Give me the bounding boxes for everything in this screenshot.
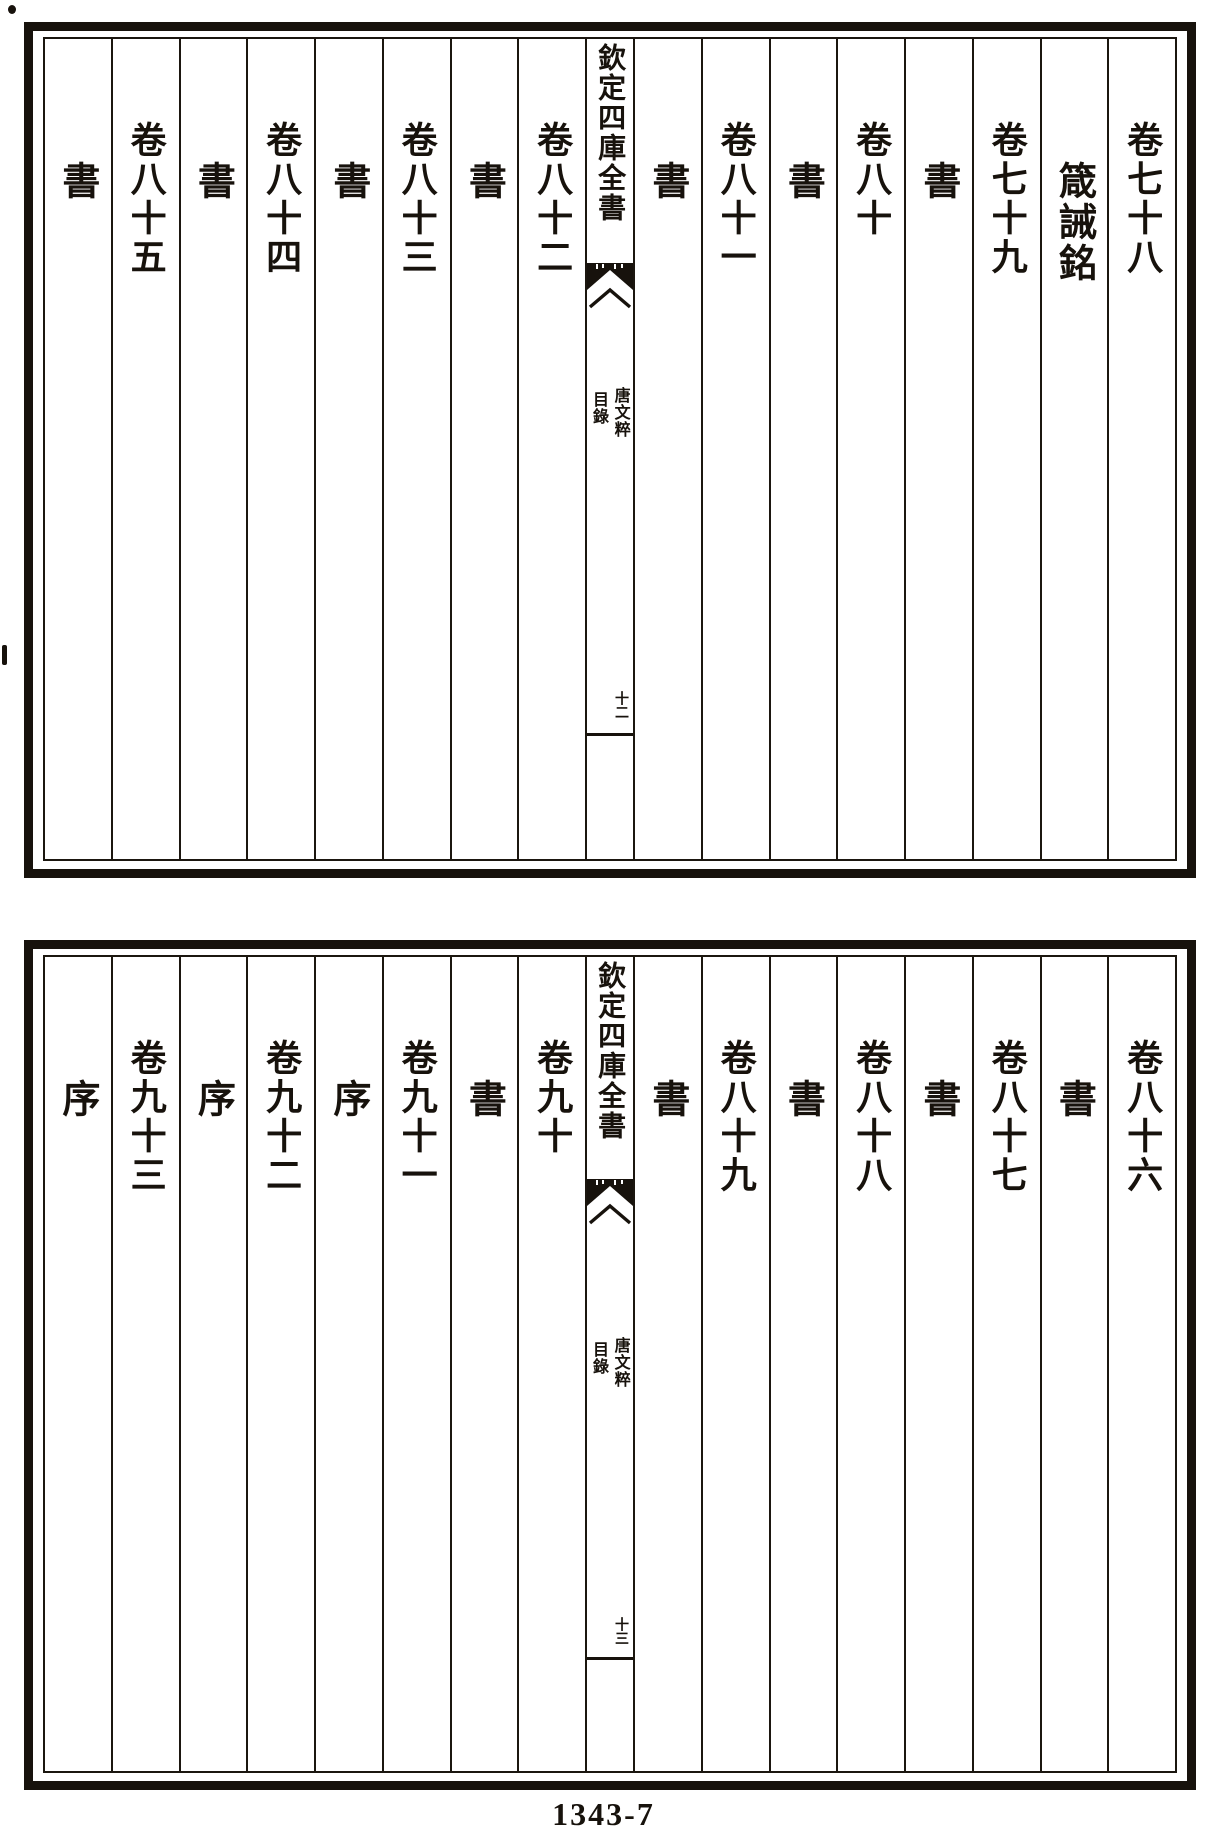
folio-number: 十三 (613, 1617, 628, 1645)
banxin-column: 欽定四庫全書 唐文粹 目錄 十三 (585, 957, 633, 1771)
volume-column: 卷八十 (836, 39, 904, 859)
volume-column: 卷八十五 (111, 39, 179, 859)
volume-label: 卷八十五 (128, 121, 164, 277)
volume-label: 卷八十 (853, 121, 889, 238)
genre-label: 書 (1055, 1079, 1093, 1120)
work-title: 唐文粹 (612, 1337, 630, 1388)
page-number-footer: 1343-7 (0, 1796, 1207, 1833)
column-grid: 卷七十八 箴誡銘 卷七十九 書 卷八十 書 卷八十一 書 欽定四庫全書 唐文粹 … (43, 37, 1177, 861)
volume-column: 卷八十一 (701, 39, 769, 859)
genre-label: 書 (465, 1079, 503, 1120)
genre-column: 書 (904, 39, 972, 859)
series-title: 欽定四庫全書 (595, 961, 625, 1141)
work-title: 唐文粹 (612, 387, 630, 438)
volume-label: 卷七十八 (1124, 121, 1160, 277)
volume-label: 卷八十六 (1124, 1039, 1160, 1195)
banxin-subtitle: 唐文粹 目錄 (587, 1337, 633, 1388)
volume-label: 卷九十三 (128, 1039, 164, 1195)
genre-label: 序 (59, 1079, 97, 1120)
banxin-column: 欽定四庫全書 唐文粹 目錄 十二 (585, 39, 633, 859)
volume-column: 卷九十三 (111, 957, 179, 1771)
genre-column: 書 (179, 39, 247, 859)
genre-column: 序 (179, 957, 247, 1771)
volume-label: 卷八十九 (718, 1039, 754, 1195)
volume-column: 卷八十八 (836, 957, 904, 1771)
genre-label: 書 (194, 161, 232, 202)
genre-column: 書 (633, 957, 701, 1771)
genre-column: 書 (450, 39, 518, 859)
volume-column: 卷八十七 (972, 957, 1040, 1771)
genre-label: 書 (330, 161, 368, 202)
volume-column: 卷八十六 (1107, 957, 1175, 1771)
volume-column: 卷八十四 (246, 39, 314, 859)
volume-label: 卷九十一 (399, 1039, 435, 1195)
volume-label: 卷八十一 (718, 121, 754, 277)
genre-column: 書 (904, 957, 972, 1771)
genre-column: 序 (314, 957, 382, 1771)
genre-column: 箴誡銘 (1040, 39, 1108, 859)
folio-rule (587, 733, 633, 736)
genre-label: 書 (649, 1079, 687, 1120)
volume-column: 卷九十 (517, 957, 585, 1771)
volume-column: 卷八十三 (382, 39, 450, 859)
volume-label: 卷八十四 (263, 121, 299, 277)
volume-column: 卷九十一 (382, 957, 450, 1771)
genre-label: 書 (920, 1079, 958, 1120)
section-label: 目錄 (590, 1341, 608, 1388)
ink-speck (2, 645, 7, 665)
volume-label: 卷九十二 (263, 1039, 299, 1195)
genre-label: 書 (784, 161, 822, 202)
volume-label: 卷八十二 (534, 121, 570, 277)
volume-label: 卷七十九 (989, 121, 1025, 277)
volume-label: 卷九十 (534, 1039, 570, 1156)
genre-column: 序 (45, 957, 111, 1771)
genre-label: 箴誡銘 (1055, 161, 1093, 284)
genre-label: 書 (465, 161, 503, 202)
genre-column: 書 (314, 39, 382, 859)
genre-label: 書 (649, 161, 687, 202)
series-title: 欽定四庫全書 (595, 43, 625, 223)
folio-rule (587, 1657, 633, 1660)
genre-column: 書 (769, 957, 837, 1771)
banxin-subtitle: 唐文粹 目錄 (587, 387, 633, 438)
column-grid: 卷八十六 書 卷八十七 書 卷八十八 書 卷八十九 書 欽定四庫全書 唐文粹 目… (43, 955, 1177, 1773)
volume-column: 卷九十二 (246, 957, 314, 1771)
section-label: 目錄 (590, 391, 608, 438)
genre-column: 書 (450, 957, 518, 1771)
genre-label: 序 (330, 1079, 368, 1120)
genre-column: 書 (633, 39, 701, 859)
genre-column: 書 (769, 39, 837, 859)
genre-label: 書 (59, 161, 97, 202)
volume-column: 卷七十八 (1107, 39, 1175, 859)
volume-label: 卷八十三 (399, 121, 435, 277)
volume-label: 卷八十八 (853, 1039, 889, 1195)
volume-column: 卷七十九 (972, 39, 1040, 859)
genre-column: 書 (45, 39, 111, 859)
folio-number: 十二 (613, 691, 628, 719)
volume-column: 卷八十九 (701, 957, 769, 1771)
genre-label: 書 (920, 161, 958, 202)
page-block-top: 卷七十八 箴誡銘 卷七十九 書 卷八十 書 卷八十一 書 欽定四庫全書 唐文粹 … (24, 22, 1196, 878)
ink-speck (8, 5, 16, 14)
fishtail-icon (587, 1179, 633, 1233)
volume-label: 卷八十七 (989, 1039, 1025, 1195)
genre-label: 序 (194, 1079, 232, 1120)
genre-column: 書 (1040, 957, 1108, 1771)
page-block-bottom: 卷八十六 書 卷八十七 書 卷八十八 書 卷八十九 書 欽定四庫全書 唐文粹 目… (24, 940, 1196, 1790)
genre-label: 書 (784, 1079, 822, 1120)
volume-column: 卷八十二 (517, 39, 585, 859)
fishtail-icon (587, 263, 633, 317)
